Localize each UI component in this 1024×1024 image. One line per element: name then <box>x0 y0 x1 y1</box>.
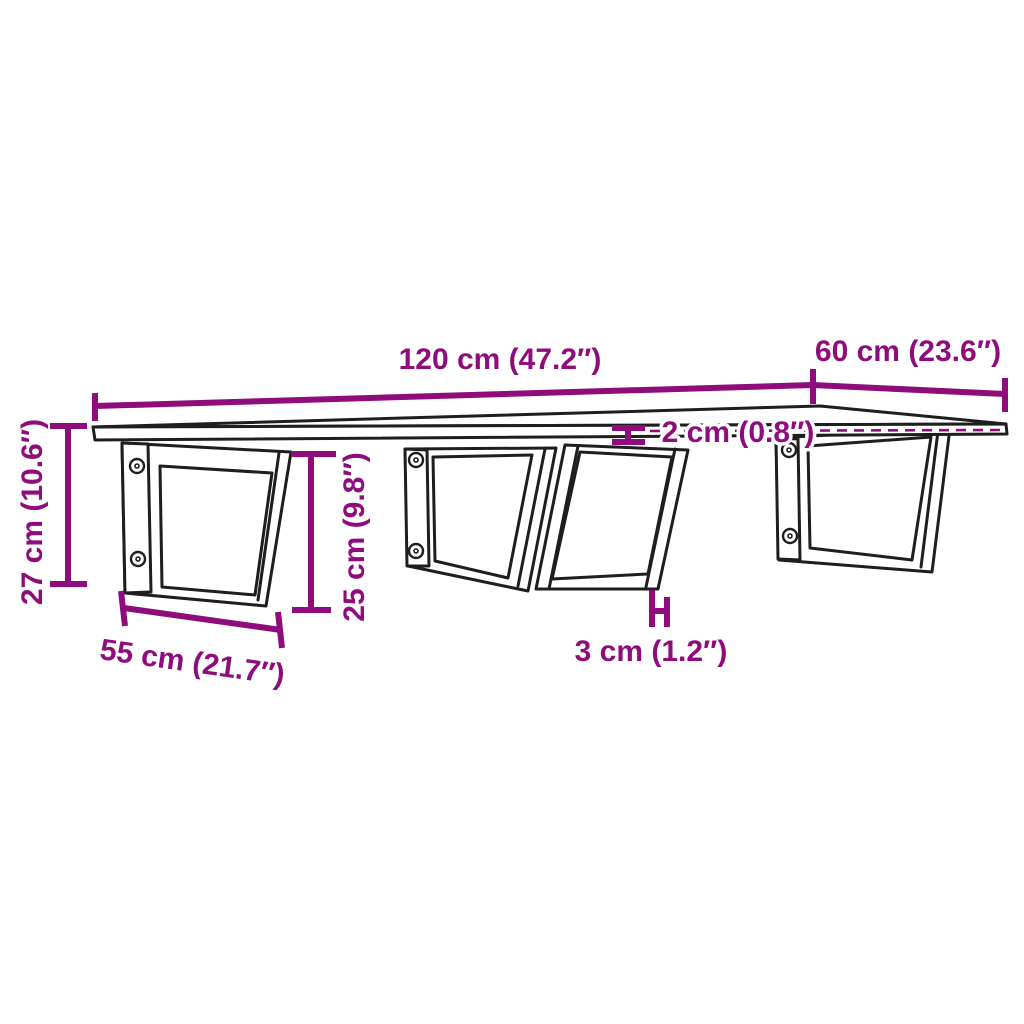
dimension-bracket-height: 25 cm (9.8″) <box>291 452 371 621</box>
dimension-board-depth: 60 cm (23.6″) <box>813 335 1005 412</box>
bracket-1 <box>122 443 291 606</box>
shelf-dimension-diagram: 120 cm (47.2″) 60 cm (23.6″) 2 cm (0.8″)… <box>0 0 1024 1024</box>
dimension-label-bracket-depth: 55 cm (21.7″) <box>98 633 287 692</box>
dimension-label-bracket-height: 25 cm (9.8″) <box>338 452 371 621</box>
dimension-label-bracket-bar-width: 3 cm (1.2″) <box>575 635 728 668</box>
diagram-page: 120 cm (47.2″) 60 cm (23.6″) 2 cm (0.8″)… <box>0 0 1024 1024</box>
bracket-4 <box>776 428 950 572</box>
screw-hole-center <box>136 557 140 561</box>
bracket-3 <box>536 445 688 589</box>
furniture-line-art <box>93 406 1007 606</box>
screw-hole-center <box>135 464 139 468</box>
dimension-line <box>95 385 813 406</box>
dimension-label-total-height: 27 cm (10.6″) <box>16 419 49 605</box>
dimension-line <box>813 385 1005 394</box>
bracket-opening <box>160 466 272 595</box>
bracket-opening <box>808 437 931 560</box>
dimension-label-board-length: 120 cm (47.2″) <box>399 343 602 376</box>
screw-hole-center <box>414 549 418 553</box>
screw-hole-center <box>414 458 418 462</box>
dimension-label-board-depth: 60 cm (23.6″) <box>815 335 1001 368</box>
dimension-label-board-thickness: 2 cm (0.8″) <box>662 416 815 449</box>
dimension-tick <box>278 612 282 648</box>
dimension-total-height: 27 cm (10.6″) <box>16 419 87 605</box>
shelf-board <box>93 406 1007 440</box>
bracket-2 <box>405 448 556 591</box>
screw-hole-center <box>788 534 792 538</box>
dimension-line <box>124 608 281 630</box>
dimension-bracket-bar-width: 3 cm (1.2″) <box>575 590 728 668</box>
dimension-tick <box>121 591 125 626</box>
